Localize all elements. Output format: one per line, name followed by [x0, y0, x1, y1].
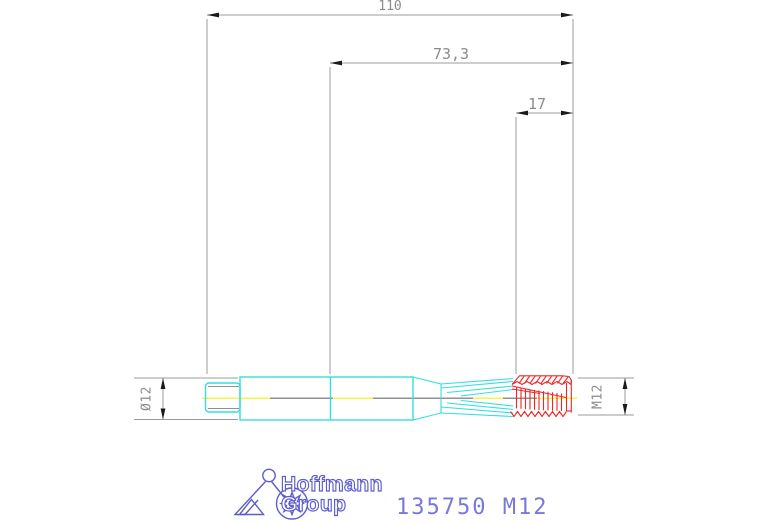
brand-wordmark: Hoffmann Group [281, 475, 383, 515]
dimension-110-lines [207, 15, 573, 374]
tool-thread [511, 376, 572, 417]
dim-overall-length-label: 110 [358, 0, 422, 14]
technical-drawing-svg [0, 0, 767, 523]
dimension-17-lines [516, 113, 573, 374]
technical-drawing-page: 110 73,3 17 Ø12 M12 Hoffmann Group 13575… [0, 0, 767, 523]
thread-size-label: M12 [591, 376, 606, 418]
part-number: 135750 M12 [396, 495, 548, 520]
brand-line1: Hoffmann [281, 475, 383, 495]
dim-thread-length-label: 17 [505, 95, 569, 113]
dim-length-to-neck-label: 73,3 [419, 45, 483, 63]
tool-square-drive [206, 383, 241, 412]
brand-line2: Group [281, 495, 383, 515]
shank-diameter-label: Ø12 [140, 378, 155, 420]
